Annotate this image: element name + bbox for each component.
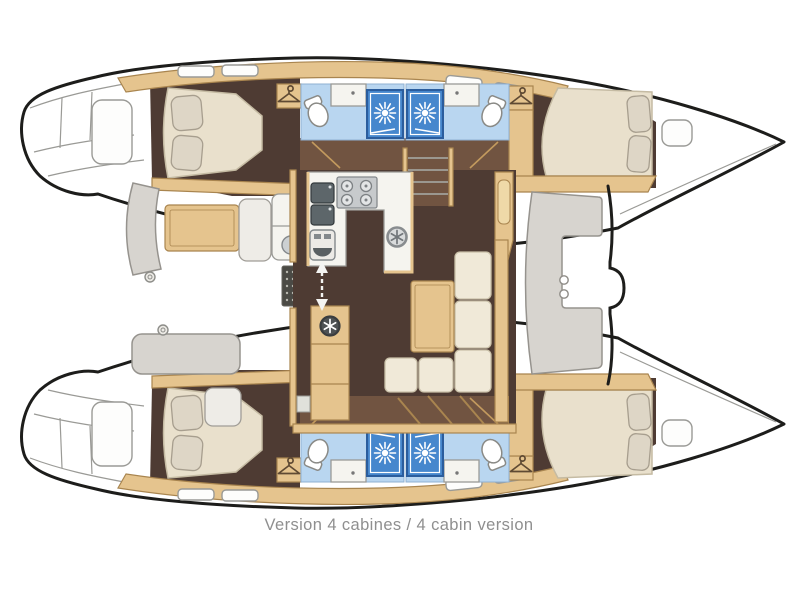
salon-aft-wall bbox=[290, 308, 296, 426]
caption: Version 4 cabines / 4 cabin version bbox=[265, 516, 534, 534]
salon-fwd-wall bbox=[293, 424, 516, 433]
cockpit-pad bbox=[205, 388, 241, 426]
stove-burners-icon bbox=[337, 177, 377, 208]
salon bbox=[290, 148, 516, 433]
salon-table bbox=[411, 281, 454, 352]
cockpit-table bbox=[165, 205, 239, 251]
salon-aft-wall bbox=[290, 170, 296, 262]
galley-appliance-icon bbox=[310, 230, 335, 260]
cockpit-bench bbox=[132, 334, 240, 374]
cup-holder bbox=[560, 290, 568, 298]
cockpit-seatback bbox=[127, 183, 162, 275]
floor-plan-canvas: Version 4 cabines / 4 cabin version bbox=[0, 0, 800, 600]
sofa-backrest bbox=[495, 240, 508, 422]
cup-holder bbox=[560, 276, 568, 284]
cockpit-seat bbox=[239, 199, 271, 261]
floor-plan-page: Version 4 cabines / 4 cabin version bbox=[0, 0, 800, 600]
